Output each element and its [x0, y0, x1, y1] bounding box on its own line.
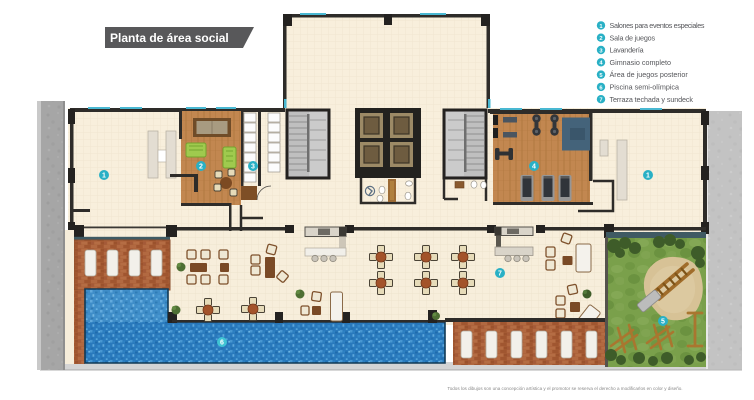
svg-text:4: 4 — [532, 164, 536, 171]
svg-text:Gimnasio completo: Gimnasio completo — [610, 58, 672, 67]
svg-text:3: 3 — [251, 164, 255, 171]
svg-text:Área de juegos posterior: Área de juegos posterior — [610, 70, 689, 79]
svg-text:1: 1 — [102, 173, 106, 180]
svg-text:Terraza techada y sundeck: Terraza techada y sundeck — [610, 95, 694, 104]
svg-text:1: 1 — [646, 173, 650, 180]
svg-text:2: 2 — [599, 36, 602, 42]
svg-text:Lavandería: Lavandería — [610, 46, 644, 55]
svg-text:5: 5 — [661, 319, 665, 326]
svg-text:Piscina semi-olímpica: Piscina semi-olímpica — [610, 83, 680, 92]
svg-text:Sala de juegos: Sala de juegos — [610, 33, 656, 42]
svg-text:2: 2 — [199, 164, 203, 171]
svg-text:6: 6 — [220, 340, 224, 347]
svg-text:7: 7 — [498, 271, 502, 278]
svg-text:7: 7 — [599, 98, 602, 104]
svg-text:Salones para eventos especiale: Salones para eventos especiales — [610, 21, 705, 30]
svg-text:Planta de área social: Planta de área social — [110, 31, 229, 45]
svg-text:Todos los dibujos son una conc: Todos los dibujos son una concepción art… — [447, 386, 682, 391]
